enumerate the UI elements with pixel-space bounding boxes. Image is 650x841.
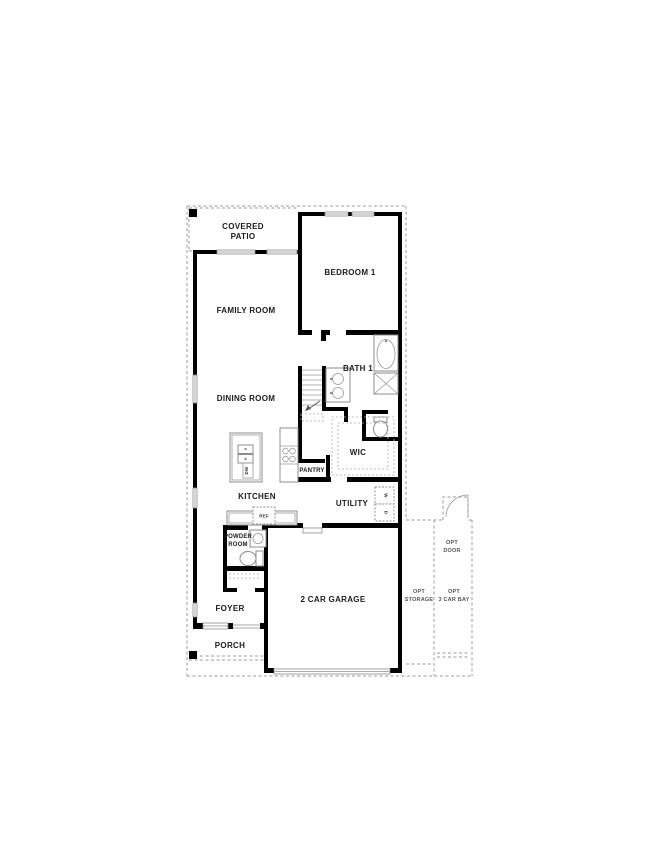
porch-post	[189, 651, 197, 659]
washer-dryer: W D	[375, 487, 394, 521]
room-label-wic: WIC	[350, 448, 366, 457]
room-label-porch: PORCH	[215, 641, 245, 650]
room-label-garage: 2 CAR GARAGE	[301, 595, 366, 604]
room-label-pantry: PANTRY	[299, 468, 324, 474]
option-labels: OPT STORAGE OPT 3 CAR BAY OPT DOOR	[405, 540, 470, 603]
room-label-bedroom-1: BEDROOM 1	[324, 268, 375, 277]
room-label-kitchen: KITCHEN	[238, 492, 276, 501]
room-label-dining-room: DINING ROOM	[217, 394, 275, 403]
patio-slider-door	[267, 250, 297, 254]
opt-3-car-bay-area	[437, 497, 472, 676]
bathtub	[374, 335, 398, 371]
room-label-foyer: FOYER	[215, 604, 244, 613]
foyer-closet	[229, 574, 261, 578]
powder-toilet	[240, 551, 263, 566]
garage-door	[274, 667, 390, 674]
opt-door-label-1: OPT	[446, 540, 458, 546]
family-room-window	[217, 250, 255, 254]
refrigerator: REF	[253, 507, 275, 524]
dishwasher-label: DW	[244, 466, 249, 474]
room-label-utility: UTILITY	[336, 499, 369, 508]
bedroom-window-1	[325, 212, 348, 216]
opt-3-car-bay-label-2: 3 CAR BAY	[439, 597, 470, 603]
powder-sink	[250, 530, 266, 547]
staircase	[301, 370, 323, 421]
room-label-powder-2: ROOM	[228, 542, 247, 548]
island-sink	[238, 445, 253, 463]
room-label-covered-patio-2: PATIO	[231, 232, 256, 241]
toilet	[374, 417, 388, 437]
room-label-family-room: FAMILY ROOM	[217, 306, 276, 315]
kitchen-south-counter: REF	[227, 507, 297, 525]
front-window	[203, 623, 228, 629]
stair-landing	[301, 414, 323, 421]
opt-door-swing	[446, 495, 468, 517]
opt-door-label-2: DOOR	[443, 548, 460, 554]
opt-3-car-bay-label-1: OPT	[448, 589, 460, 595]
bedroom-window-2	[352, 212, 374, 216]
opt-storage-label-1: OPT	[413, 589, 425, 595]
patio-post	[189, 209, 197, 217]
room-label-powder-1: POWDER	[224, 534, 253, 540]
room-label-covered-patio-1: COVERED	[222, 222, 264, 231]
double-vanity	[326, 368, 350, 402]
dining-window	[193, 375, 197, 403]
porch	[189, 651, 264, 660]
washer-label: W	[384, 493, 389, 498]
garage-step	[303, 528, 322, 533]
foyer-window	[193, 603, 197, 617]
dryer-label: D	[384, 511, 389, 515]
kitchen-east-counter	[280, 428, 298, 482]
refrigerator-label: REF	[259, 514, 269, 519]
floor-plan-canvas: DW REF W D	[0, 0, 650, 841]
front-door	[233, 622, 260, 630]
room-label-bath-1: BATH 1	[343, 364, 373, 373]
kitchen-window	[193, 488, 197, 508]
opt-storage-label-2: STORAGE	[405, 597, 434, 603]
shower	[374, 373, 398, 394]
kitchen-island: DW	[230, 433, 262, 482]
